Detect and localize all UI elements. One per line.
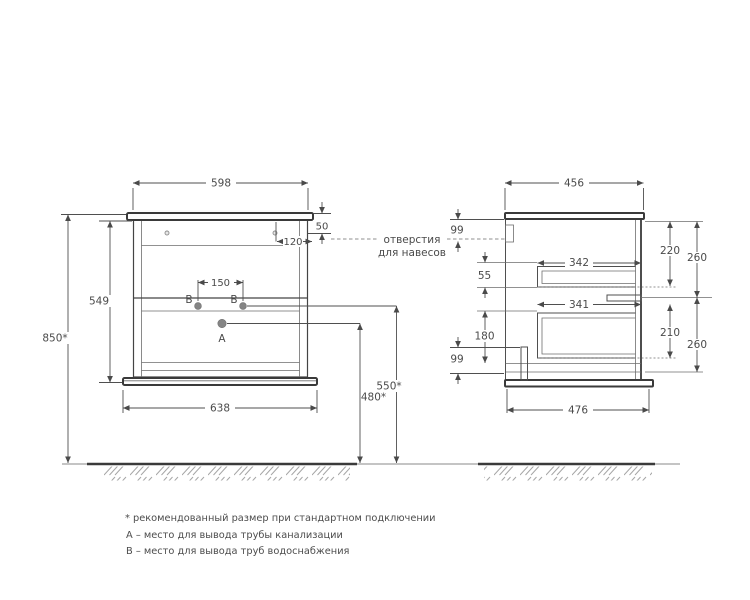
dim-drawer2-total-height: 260: [687, 339, 707, 351]
footnotes: * рекомендованный размер при стандартном…: [125, 513, 436, 557]
dim-bottom-offset: 99: [450, 354, 463, 366]
side-plinth: [505, 380, 653, 387]
dim-drawer1-front-height: 220: [660, 245, 680, 257]
point-a-dot: [218, 319, 226, 327]
floor-hatch-right: [484, 467, 652, 481]
dim-front-carcass-height: 549: [89, 296, 109, 308]
point-b-right-label: B: [230, 294, 237, 306]
point-b-left-label: B: [185, 294, 192, 306]
drawer2-box: [538, 313, 636, 358]
footnote-point-a: А – место для вывода трубы канализации: [126, 530, 343, 541]
vanity-dimension-drawing: B B A 598 50 120 549 850* 150: [0, 0, 750, 600]
dim-back-offset: 180: [474, 331, 494, 343]
dim-drawer1-total-height: 260: [687, 252, 707, 264]
drawer1-box-inner: [542, 271, 636, 284]
hanger-hole-left: [165, 231, 169, 235]
dim-drawer2-front-height: 210: [660, 327, 680, 339]
dim-side-base-depth: 476: [568, 405, 588, 417]
dim-side-hanger-offset: 99: [450, 225, 463, 237]
drawer-rail: [607, 295, 641, 301]
dim-front-total-height: 850*: [42, 333, 67, 345]
floor-hatch-left: [104, 467, 350, 481]
point-b-right-dot: [240, 303, 247, 310]
front-rails: [142, 246, 300, 371]
point-b-left-dot: [195, 303, 202, 310]
hanger-holes-callout: отверстия для навесов: [331, 230, 506, 259]
dim-front-base-width: 638: [210, 403, 230, 415]
dim-front-top-to-holes: 50: [316, 222, 329, 233]
dim-side-top-depth: 456: [564, 178, 584, 190]
footnote-point-b: В – место для вывода труб водоснабжения: [126, 546, 350, 557]
dim-front-hole-offset: 120: [283, 237, 302, 248]
floor: [62, 464, 680, 481]
dim-drawer1-depth: 342: [569, 257, 589, 269]
technical-drawing-page: B B A 598 50 120 549 850* 150: [0, 0, 750, 600]
drawer2-box-inner: [542, 318, 636, 354]
front-plinth: [123, 378, 317, 385]
dim-front-outlet-spacing: 150: [211, 278, 230, 289]
dim-front-top-width: 598: [211, 178, 231, 190]
footnote-asterisk: * рекомендованный размер при стандартном…: [125, 513, 436, 524]
callout-line2: для навесов: [378, 247, 446, 259]
side-bottom-shelf: [506, 364, 642, 373]
side-countertop: [505, 213, 644, 219]
point-a-label: A: [218, 333, 226, 345]
dim-drain-outlet-height: 480*: [361, 392, 386, 404]
callout-line1: отверстия: [384, 234, 441, 246]
dim-drawer-gap: 55: [478, 270, 491, 282]
dim-drawer2-depth: 341: [569, 299, 589, 311]
front-countertop: [127, 213, 313, 220]
drawer1-box: [538, 267, 636, 288]
hanger-bracket: [506, 225, 514, 242]
